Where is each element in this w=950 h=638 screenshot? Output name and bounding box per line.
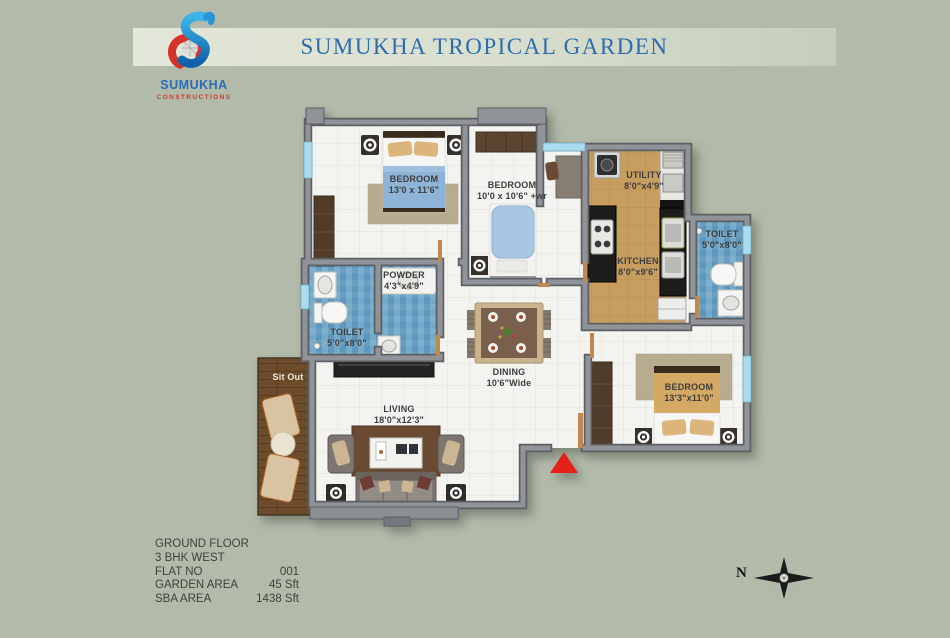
room-label-bedroom2: BEDROOM10'0 x 10'6" +wr [452,180,572,201]
info-row-garden-area: GARDEN AREA45 Sft [155,579,299,593]
dining-set [467,303,551,363]
room-label-living: LIVING18'0"x12'3" [339,404,459,425]
flat-info-block: GROUND FLOOR 3 BHK WEST FLAT NO001 GARDE… [155,538,299,607]
sitout-table [271,432,295,456]
room-label-utility: UTILITY8'0"x4'9" [584,170,704,191]
logo-name: SUMUKHA [150,78,238,92]
room-label-kitchen: KITCHEN8'0"x9'6" [578,256,698,277]
logo-subtitle: CONSTRUCTIONS [150,94,238,101]
room-label-bedroom3: BEDROOM13'3"x11'0" [629,382,749,403]
room-label-sitout: Sit Out [228,372,348,383]
floor-plan: BEDROOM13'0 x 11'6" BEDROOM10'0 x 10'6" … [250,100,760,540]
brochure-page: SUMUKHA TROPICAL GARDEN SUMUKHA CONSTRUC… [0,0,950,638]
desk-chair [545,161,559,180]
info-row-type: 3 BHK WEST [155,552,299,566]
room-label-toilet-left: TOILET5'0"x8'0" [287,327,407,348]
room-label-powder: POWDER4'3"x4'9" [344,270,464,291]
title-bar: SUMUKHA TROPICAL GARDEN [133,28,836,66]
info-row-floor: GROUND FLOOR [155,538,299,552]
info-row-flat-no: FLAT NO001 [155,566,299,580]
compass-north-label: N [736,565,747,582]
info-row-sba-area: SBA AREA1438 Sft [155,593,299,607]
entrance-marker [550,452,578,473]
hall-console [334,361,434,377]
builder-logo: SUMUKHA CONSTRUCTIONS [150,10,238,106]
page-title: SUMUKHA TROPICAL GARDEN [133,28,836,66]
room-label-dining: DINING10'6"Wide [449,367,569,388]
stove [591,220,613,254]
compass-rose-icon [750,552,818,604]
room-label-toilet-right: TOILET5'0"x8'0" [662,229,782,250]
sumukha-logo-icon [150,10,238,76]
floorplan-drawing [250,100,760,540]
